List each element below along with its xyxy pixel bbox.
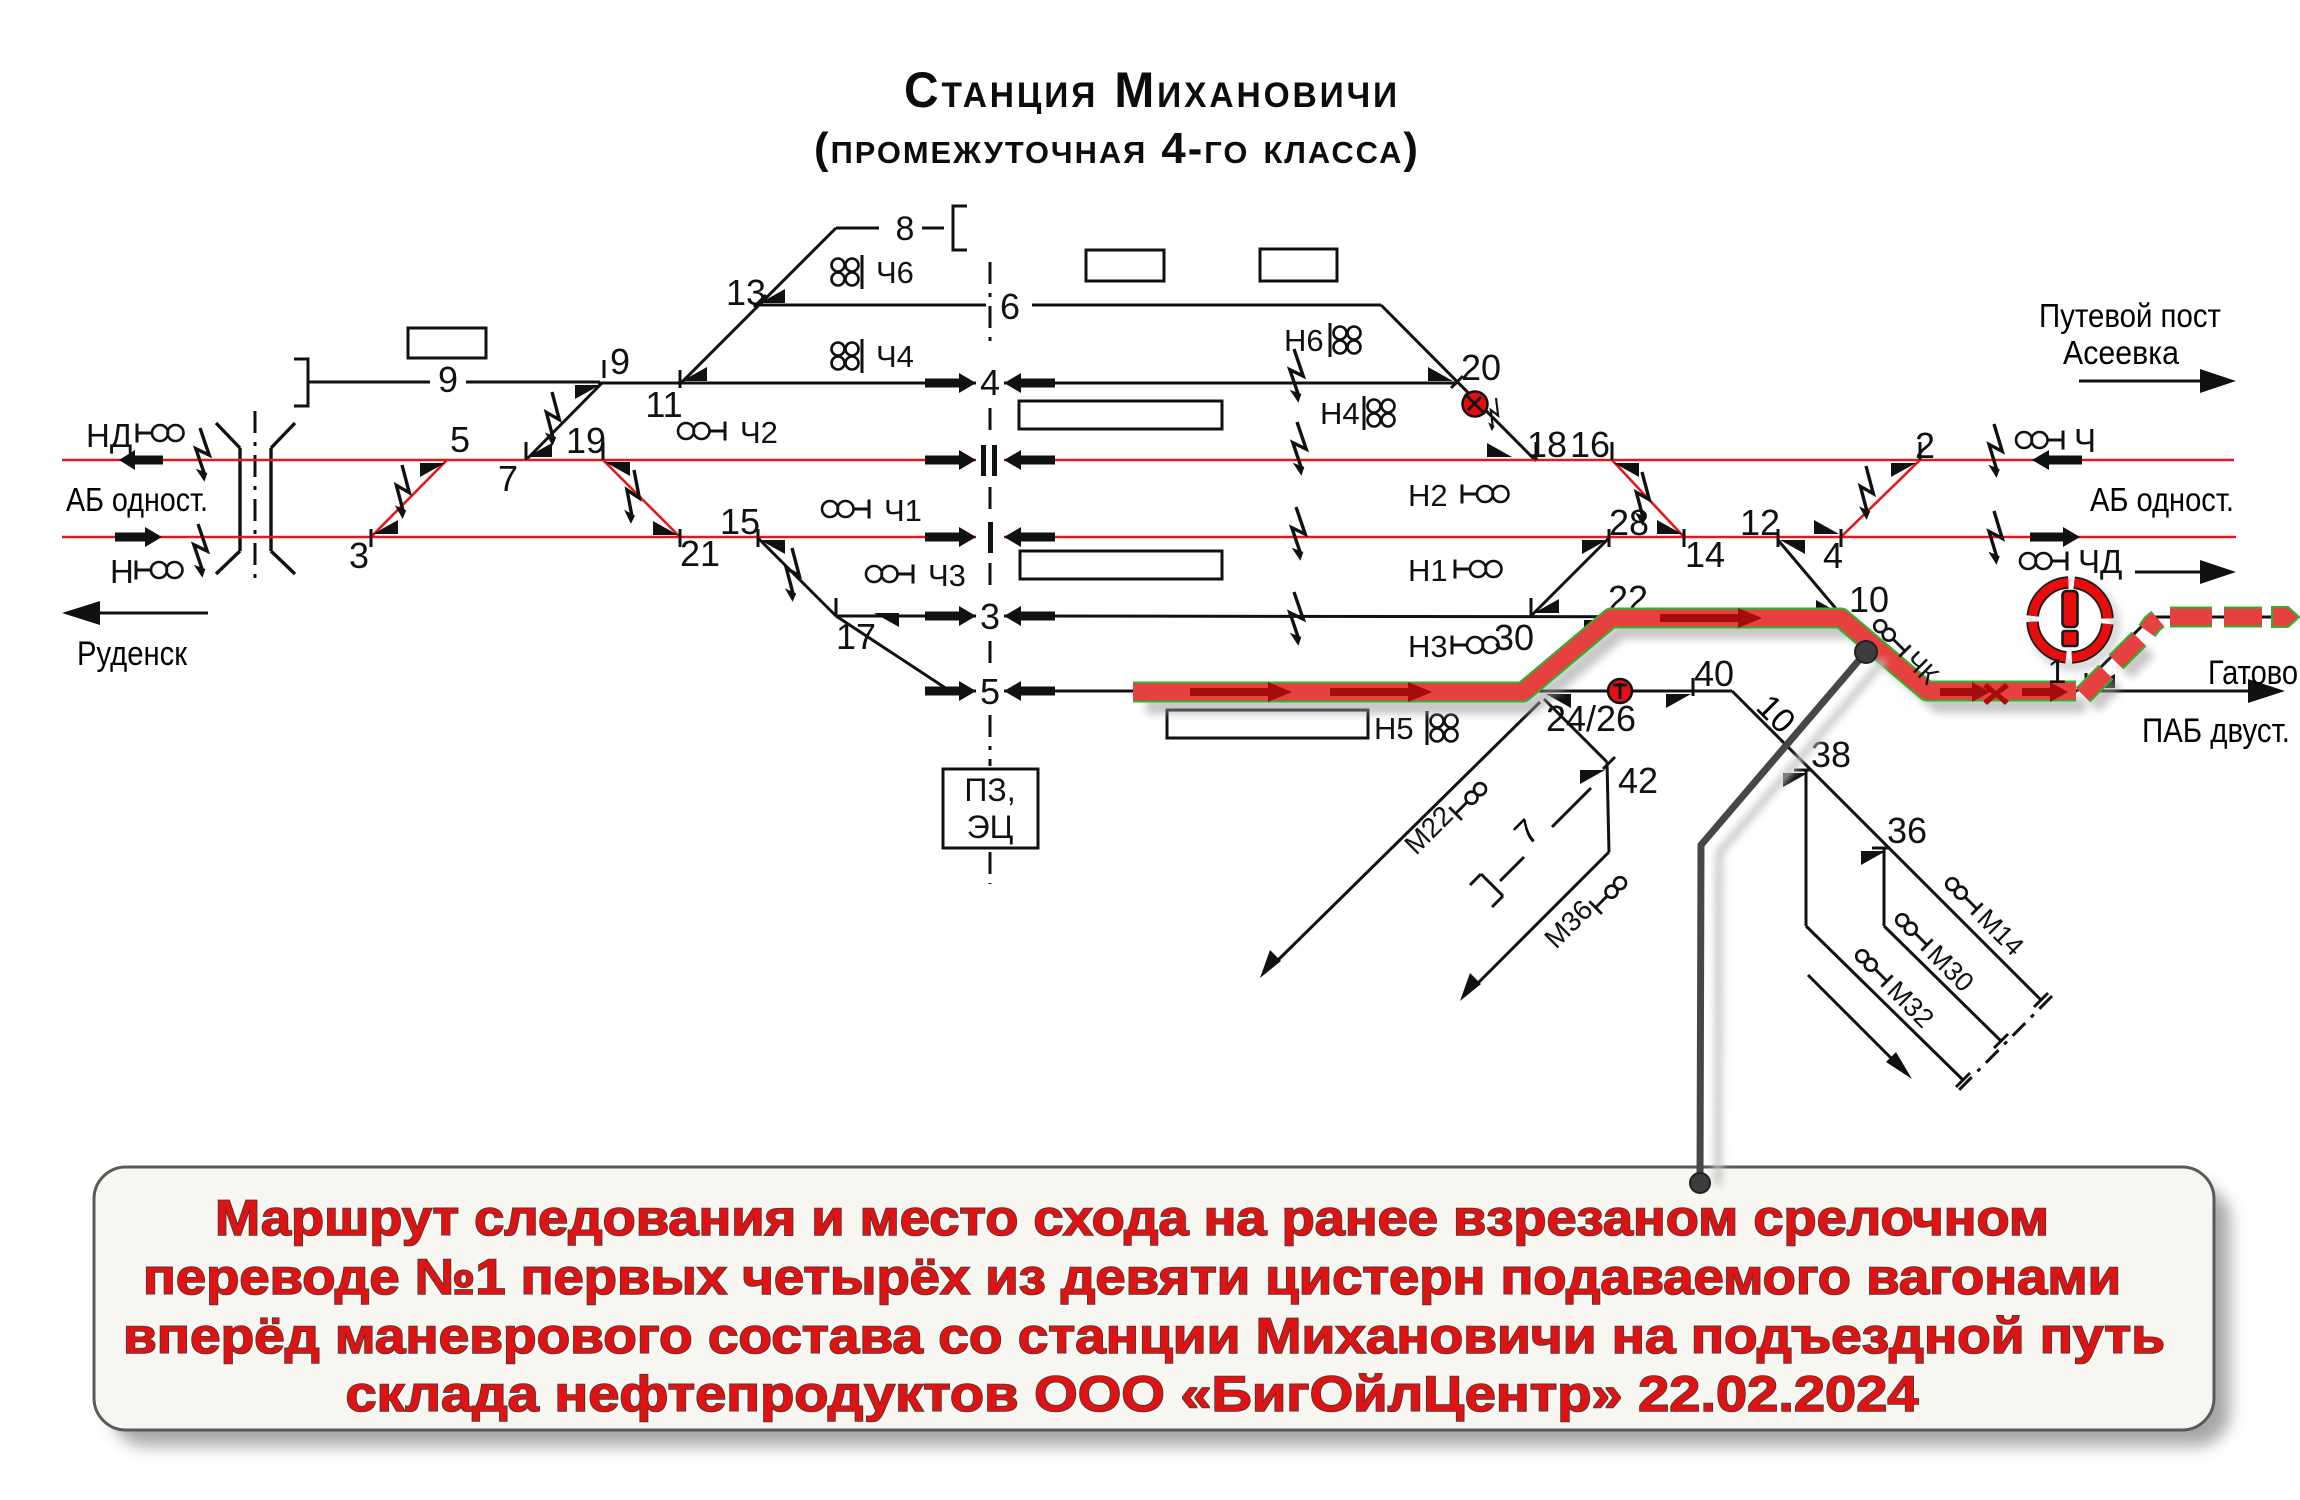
svg-text:Ч4: Ч4 xyxy=(876,339,914,374)
svg-text:5: 5 xyxy=(980,671,1000,712)
svg-text:Ч1: Ч1 xyxy=(884,493,922,528)
svg-text:7: 7 xyxy=(498,458,518,499)
svg-text:Асеевка: Асеевка xyxy=(2063,334,2180,371)
svg-text:переводе №1 первых четырёх из: переводе №1 первых четырёх из девяти цис… xyxy=(143,1249,2121,1305)
svg-text:21: 21 xyxy=(680,533,720,574)
svg-text:28: 28 xyxy=(1609,502,1649,543)
svg-text:24/26: 24/26 xyxy=(1546,698,1636,739)
svg-text:3: 3 xyxy=(349,535,369,576)
svg-text:15: 15 xyxy=(720,501,760,542)
svg-text:9: 9 xyxy=(438,359,458,400)
svg-text:6: 6 xyxy=(1000,286,1020,327)
svg-text:30: 30 xyxy=(1494,617,1534,658)
svg-text:Гатово: Гатово xyxy=(2208,654,2298,692)
svg-text:17: 17 xyxy=(836,616,876,657)
svg-text:10: 10 xyxy=(1849,579,1889,620)
svg-text:НД: НД xyxy=(86,417,132,454)
svg-text:20: 20 xyxy=(1461,347,1501,388)
svg-text:Путевой пост: Путевой пост xyxy=(2039,297,2221,334)
svg-text:4: 4 xyxy=(1823,535,1843,576)
svg-text:вперёд маневрового состава со: вперёд маневрового состава со станции Ми… xyxy=(123,1308,2165,1364)
svg-text:Ч3: Ч3 xyxy=(928,558,966,593)
svg-text:40: 40 xyxy=(1694,653,1734,694)
svg-text:11: 11 xyxy=(645,384,682,425)
svg-text:5: 5 xyxy=(450,419,470,460)
svg-text:Н4: Н4 xyxy=(1320,396,1360,431)
svg-text:Н1: Н1 xyxy=(1408,553,1448,588)
svg-text:Станция Михановичи: Станция Михановичи xyxy=(904,62,1400,118)
svg-text:Н6: Н6 xyxy=(1284,323,1324,358)
svg-text:14: 14 xyxy=(1685,534,1725,575)
svg-text:Руденск: Руденск xyxy=(77,635,188,673)
svg-text:Ч6: Ч6 xyxy=(876,255,914,290)
svg-text:3: 3 xyxy=(980,596,1000,637)
svg-text:16: 16 xyxy=(1570,424,1610,465)
svg-text:Н2: Н2 xyxy=(1408,478,1448,513)
svg-text:12: 12 xyxy=(1740,502,1780,543)
svg-text:ЭЦ: ЭЦ xyxy=(967,809,1014,845)
svg-text:4: 4 xyxy=(980,362,1000,403)
svg-text:Н5: Н5 xyxy=(1374,711,1414,746)
svg-text:36: 36 xyxy=(1887,810,1927,851)
svg-text:ПЗ,: ПЗ, xyxy=(964,772,1015,808)
svg-text:(промежуточная 4-го класса): (промежуточная 4-го класса) xyxy=(814,124,1420,173)
svg-text:Н3: Н3 xyxy=(1408,629,1448,664)
svg-text:19: 19 xyxy=(566,420,606,461)
svg-text:АБ одност.: АБ одност. xyxy=(66,481,208,518)
svg-text:9: 9 xyxy=(610,341,630,382)
svg-text:АБ одност.: АБ одност. xyxy=(2090,481,2234,518)
svg-text:42: 42 xyxy=(1618,760,1658,801)
svg-text:Н: Н xyxy=(110,553,134,590)
svg-text:1: 1 xyxy=(2048,653,2067,691)
svg-text:8: 8 xyxy=(896,210,915,248)
svg-text:Маршрут следования и место схо: Маршрут следования и место схода на ране… xyxy=(215,1190,2049,1246)
svg-text:склада нефтепродуктов ООО «Би: склада нефтепродуктов ООО «БигОйлЦентр» … xyxy=(346,1366,1919,1422)
svg-text:13: 13 xyxy=(726,272,766,313)
svg-text:Ч2: Ч2 xyxy=(740,415,778,450)
svg-text:2: 2 xyxy=(1915,425,1935,466)
svg-text:ПАБ двуст.: ПАБ двуст. xyxy=(2142,712,2290,750)
svg-text:18: 18 xyxy=(1527,424,1567,465)
svg-text:Ч: Ч xyxy=(2074,422,2096,459)
svg-text:ЧД: ЧД xyxy=(2078,543,2122,580)
